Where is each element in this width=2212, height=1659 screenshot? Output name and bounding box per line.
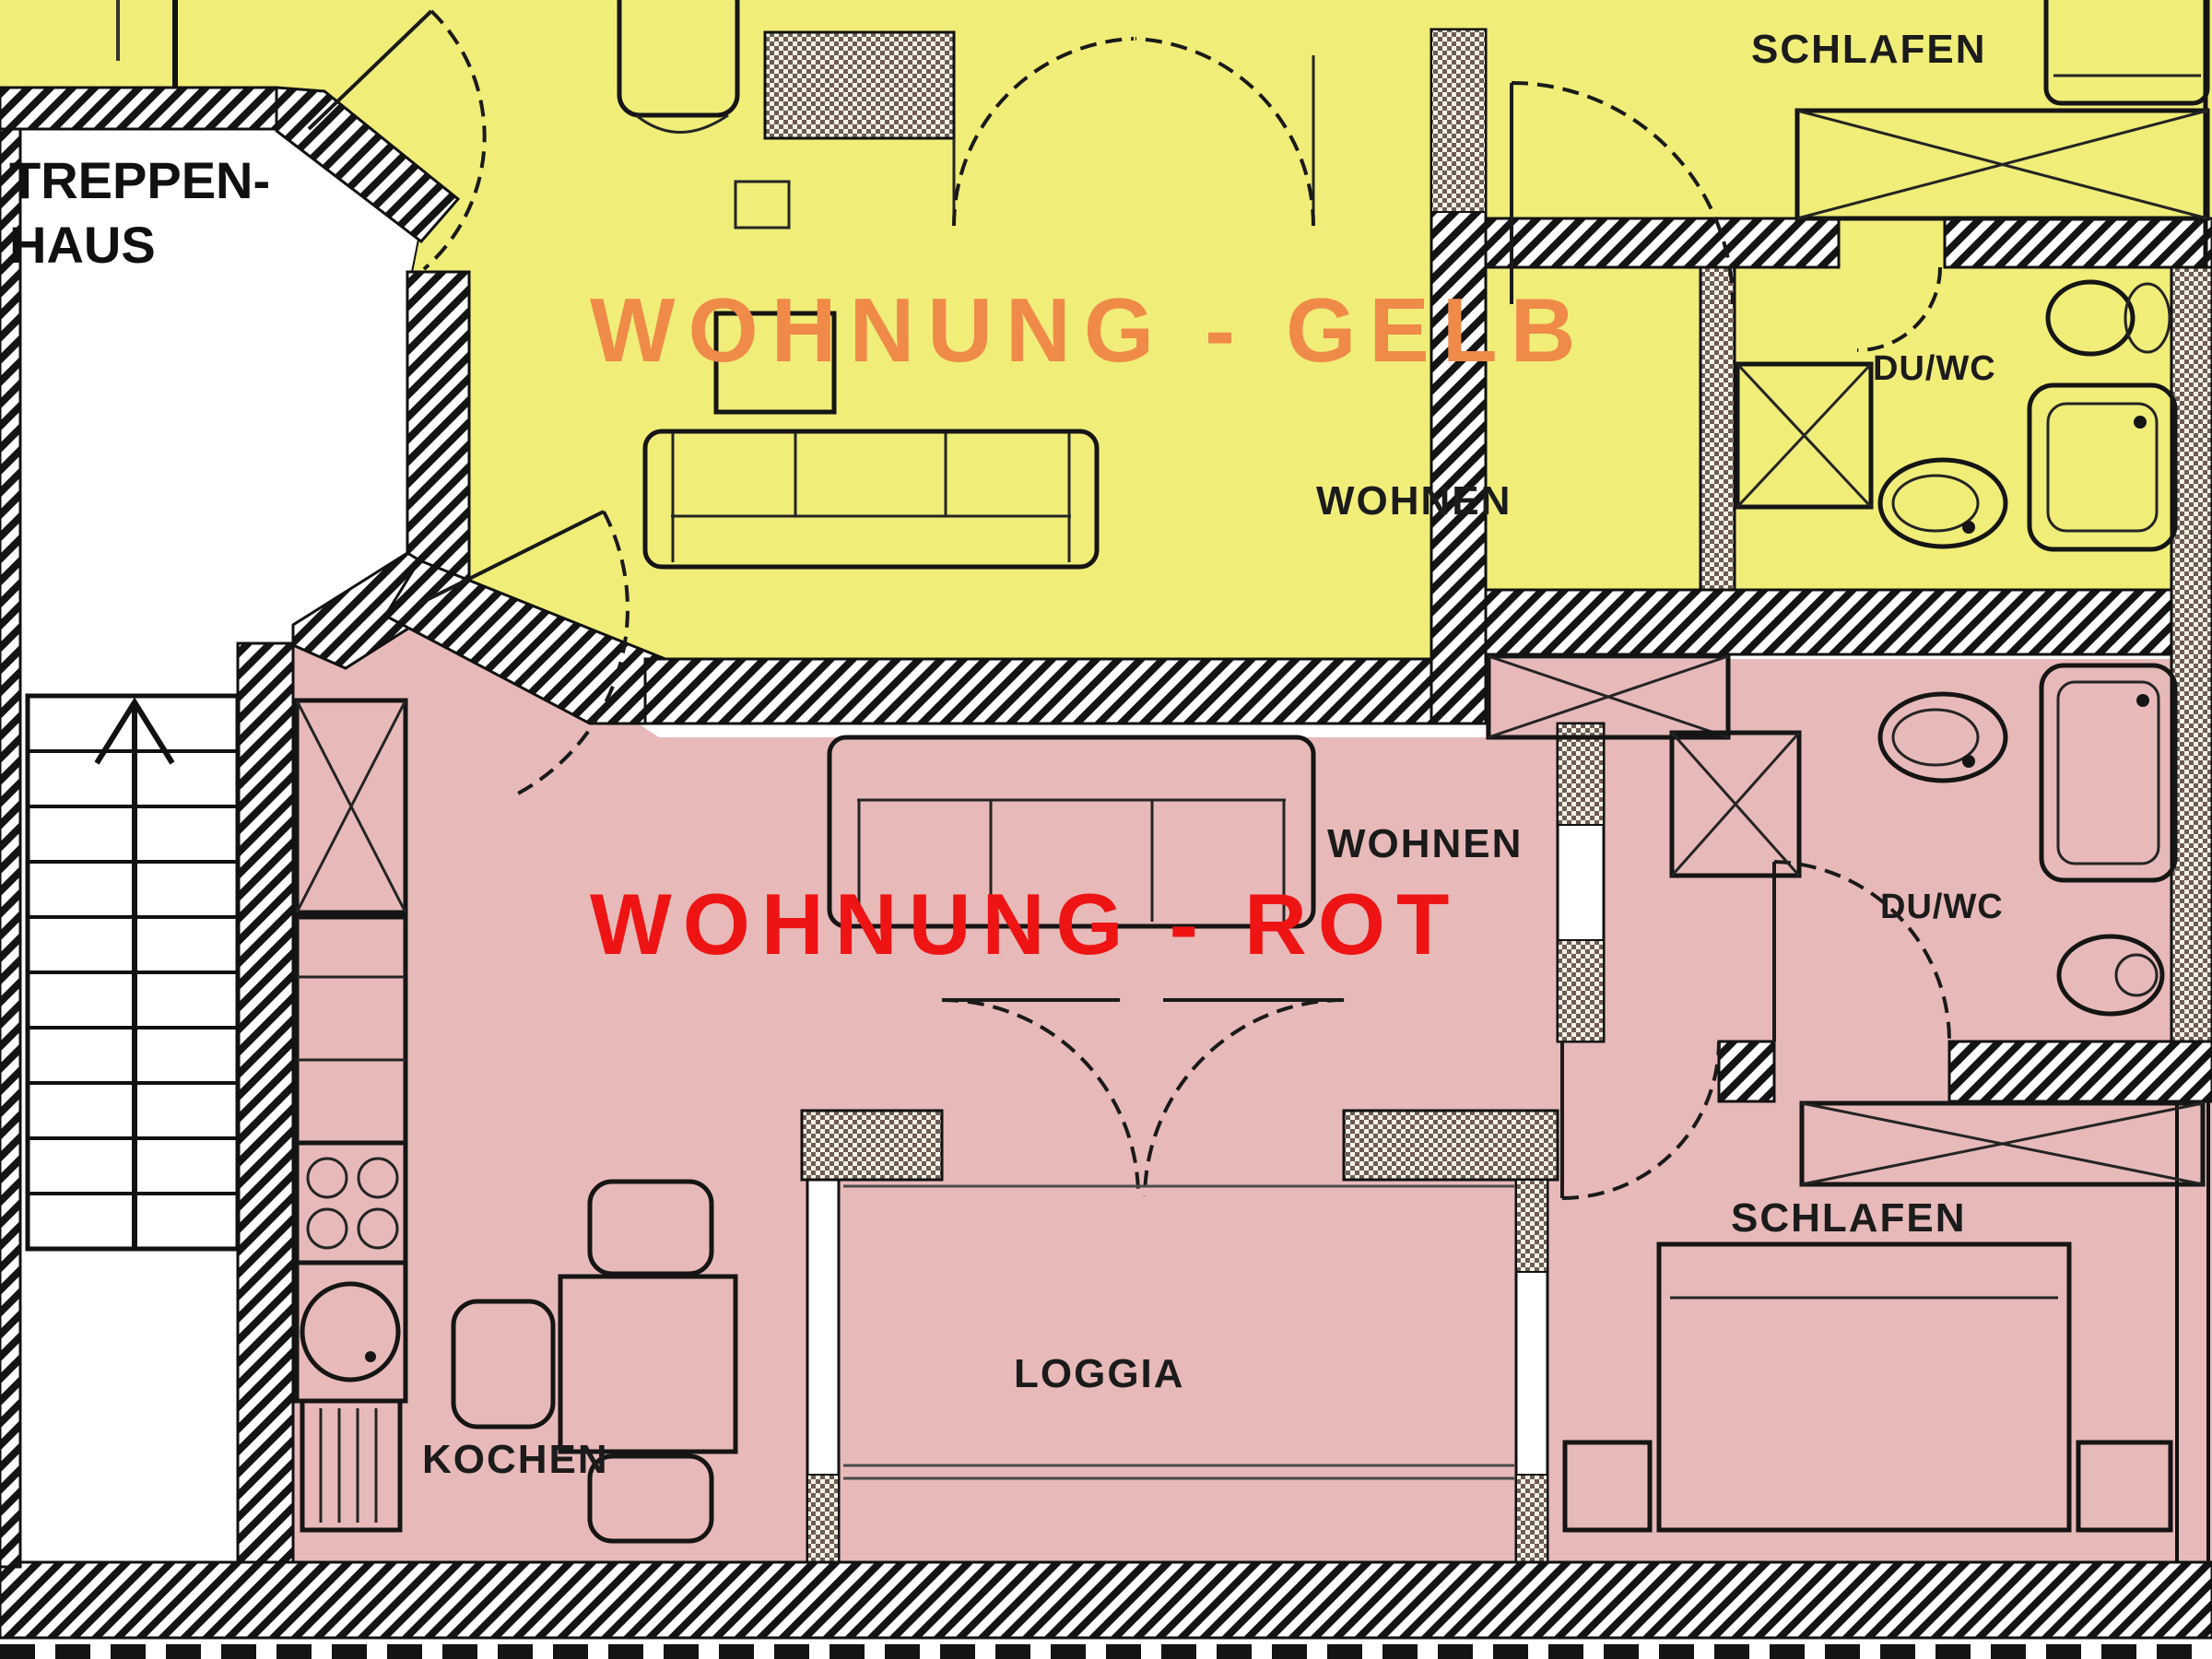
- bottom-cut-strip: [0, 1644, 2212, 1659]
- wall-gelb-schlafen-duwc-b: [1945, 218, 2212, 267]
- wall-rot-duwc-left-speck2: [1558, 940, 1604, 1041]
- wall-loggia-right-speck2: [1516, 1475, 1547, 1562]
- wall-right-exterior: [2171, 267, 2212, 1101]
- wall-stairs-right: [238, 643, 293, 1567]
- wall-corridor-gelb-speckled: [1431, 29, 1486, 212]
- label-gelb-duwc: DU/WC: [1873, 349, 1996, 388]
- label-rot-duwc: DU/WC: [1880, 888, 2004, 926]
- label-wohnung-rot: WOHNUNG - ROT: [590, 876, 1460, 972]
- wall-left-edge: [0, 129, 20, 1567]
- label-gelb-wohnen: WOHNEN: [1316, 478, 1512, 524]
- wall-gelb-duwc-left: [1700, 267, 1735, 590]
- floorplan-page: { "title": "Grundriss – Wohnung Gelb / W…: [0, 0, 2212, 1659]
- wall-loggia-right-speck1: [1516, 1180, 1547, 1272]
- wall-rot-duwc-bottom-a: [1719, 1041, 1774, 1101]
- label-treppenhaus-1: TREPPEN-: [9, 151, 270, 209]
- wall-loggia-top-right: [1344, 1111, 1558, 1180]
- wall-rot-duwc-bottom-b: [1949, 1041, 2212, 1101]
- wall-loggia-top-left: [802, 1111, 942, 1180]
- wall-stub-entry-gelb: [765, 32, 954, 138]
- label-rot-schlafen: SCHLAFEN: [1731, 1195, 1967, 1241]
- label-rot-kochen: KOCHEN: [422, 1437, 609, 1482]
- label-gelb-schlafen: SCHLAFEN: [1751, 27, 1987, 72]
- label-wohnung-gelb: WOHNUNG - GELB: [590, 279, 1588, 381]
- wall-top-staircase: [0, 88, 276, 129]
- label-rot-wohnen: WOHNEN: [1327, 821, 1523, 866]
- wall-hall-right: [407, 272, 469, 594]
- label-rot-loggia: LOGGIA: [1014, 1351, 1185, 1396]
- wall-loggia-left-speck: [807, 1475, 839, 1562]
- wall-bottom-exterior: [0, 1562, 2212, 1638]
- floor-areas: [0, 0, 2212, 1567]
- wall-divider-left: [645, 659, 1486, 724]
- wall-divider-right: [1486, 590, 2212, 654]
- label-treppenhaus-2: HAUS: [9, 216, 156, 274]
- floorplan-svg: TREPPEN- HAUS WOHNUNG - GELB WOHNEN SCHL…: [0, 0, 2212, 1659]
- wall-gelb-schlafen-duwc-a: [1486, 218, 1839, 267]
